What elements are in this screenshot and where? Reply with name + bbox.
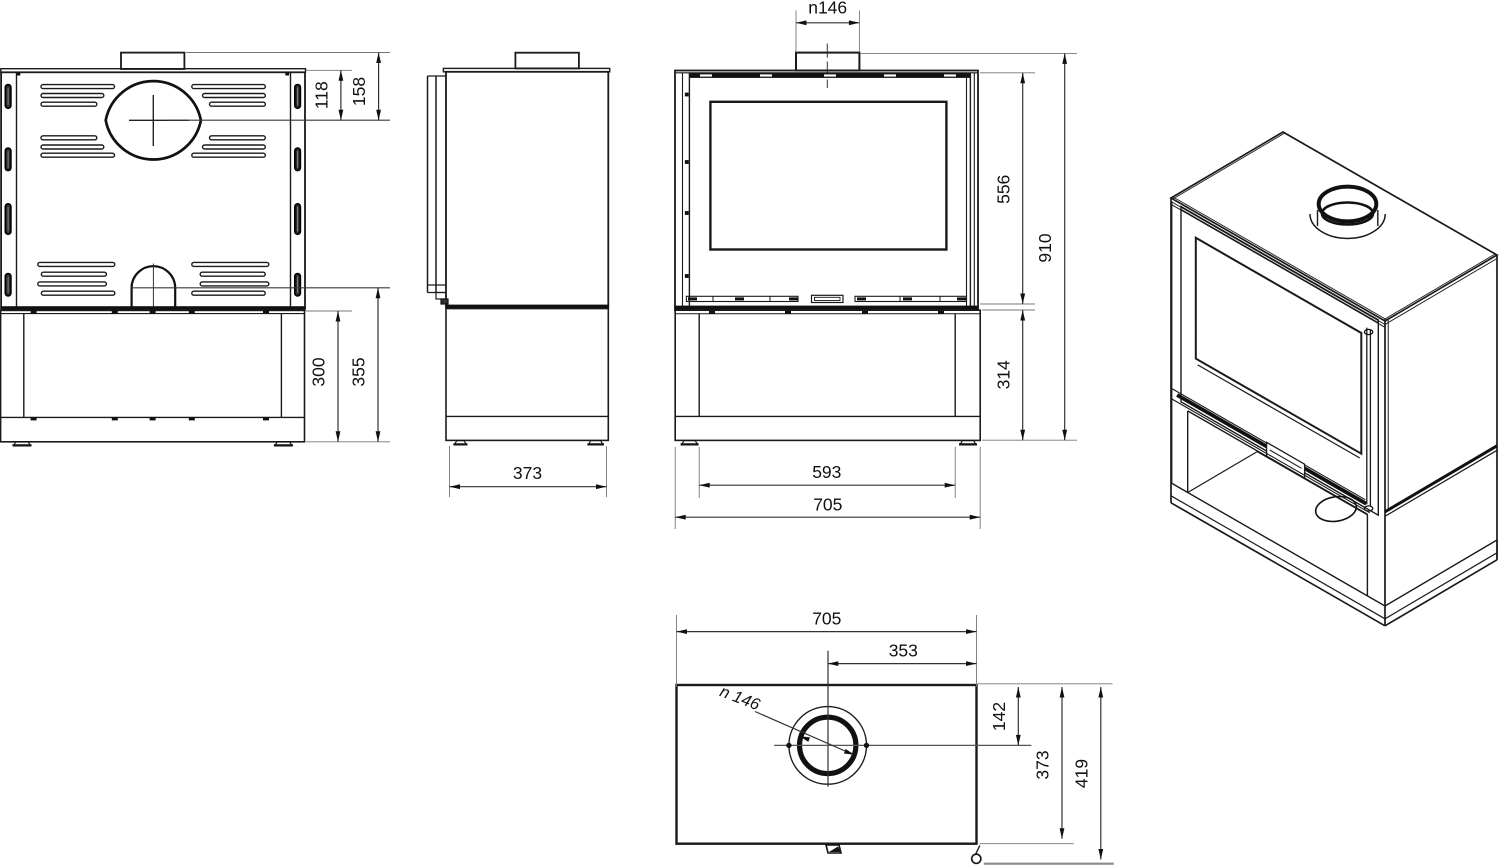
svg-text:419: 419 bbox=[1071, 759, 1091, 788]
svg-text:314: 314 bbox=[993, 360, 1013, 389]
svg-text:556: 556 bbox=[993, 175, 1013, 204]
svg-text:353: 353 bbox=[889, 641, 918, 661]
svg-text:118: 118 bbox=[312, 81, 332, 109]
svg-text:n146: n146 bbox=[808, 0, 847, 18]
svg-text:373: 373 bbox=[513, 463, 542, 483]
svg-text:705: 705 bbox=[812, 609, 841, 629]
svg-text:705: 705 bbox=[813, 495, 842, 515]
svg-text:910: 910 bbox=[1035, 233, 1055, 262]
svg-text:300: 300 bbox=[309, 357, 329, 386]
svg-text:355: 355 bbox=[349, 357, 369, 386]
svg-text:373: 373 bbox=[1033, 750, 1053, 779]
svg-text:593: 593 bbox=[812, 462, 841, 482]
svg-text:158: 158 bbox=[349, 77, 369, 106]
svg-text:142: 142 bbox=[989, 702, 1009, 731]
